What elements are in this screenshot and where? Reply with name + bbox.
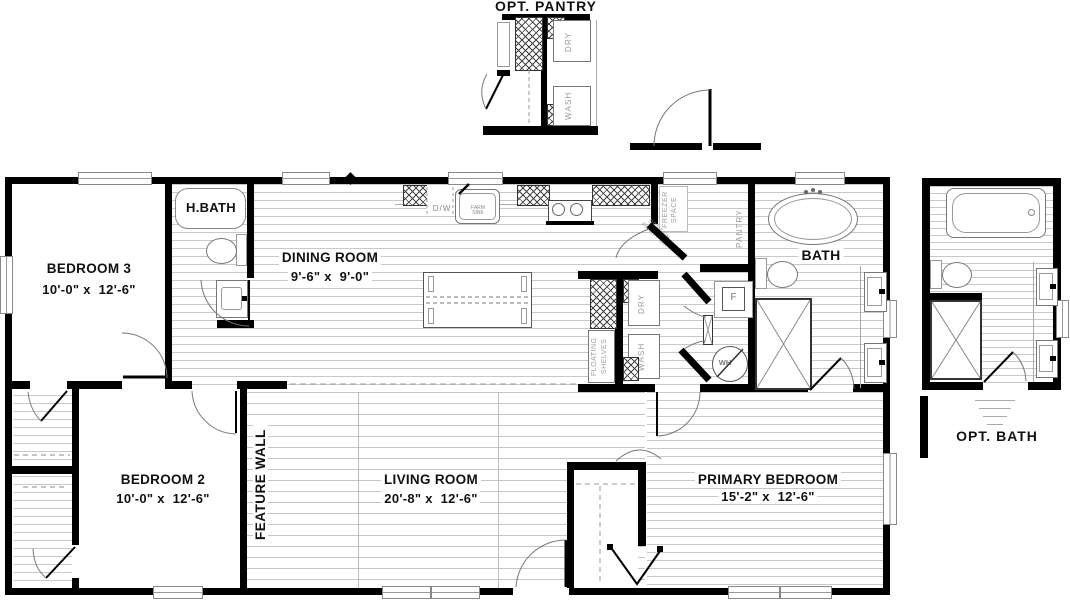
door-swing-overlay	[0, 0, 1070, 601]
floor-plan: OPT. PANTRY DRY WASH	[0, 0, 1070, 601]
